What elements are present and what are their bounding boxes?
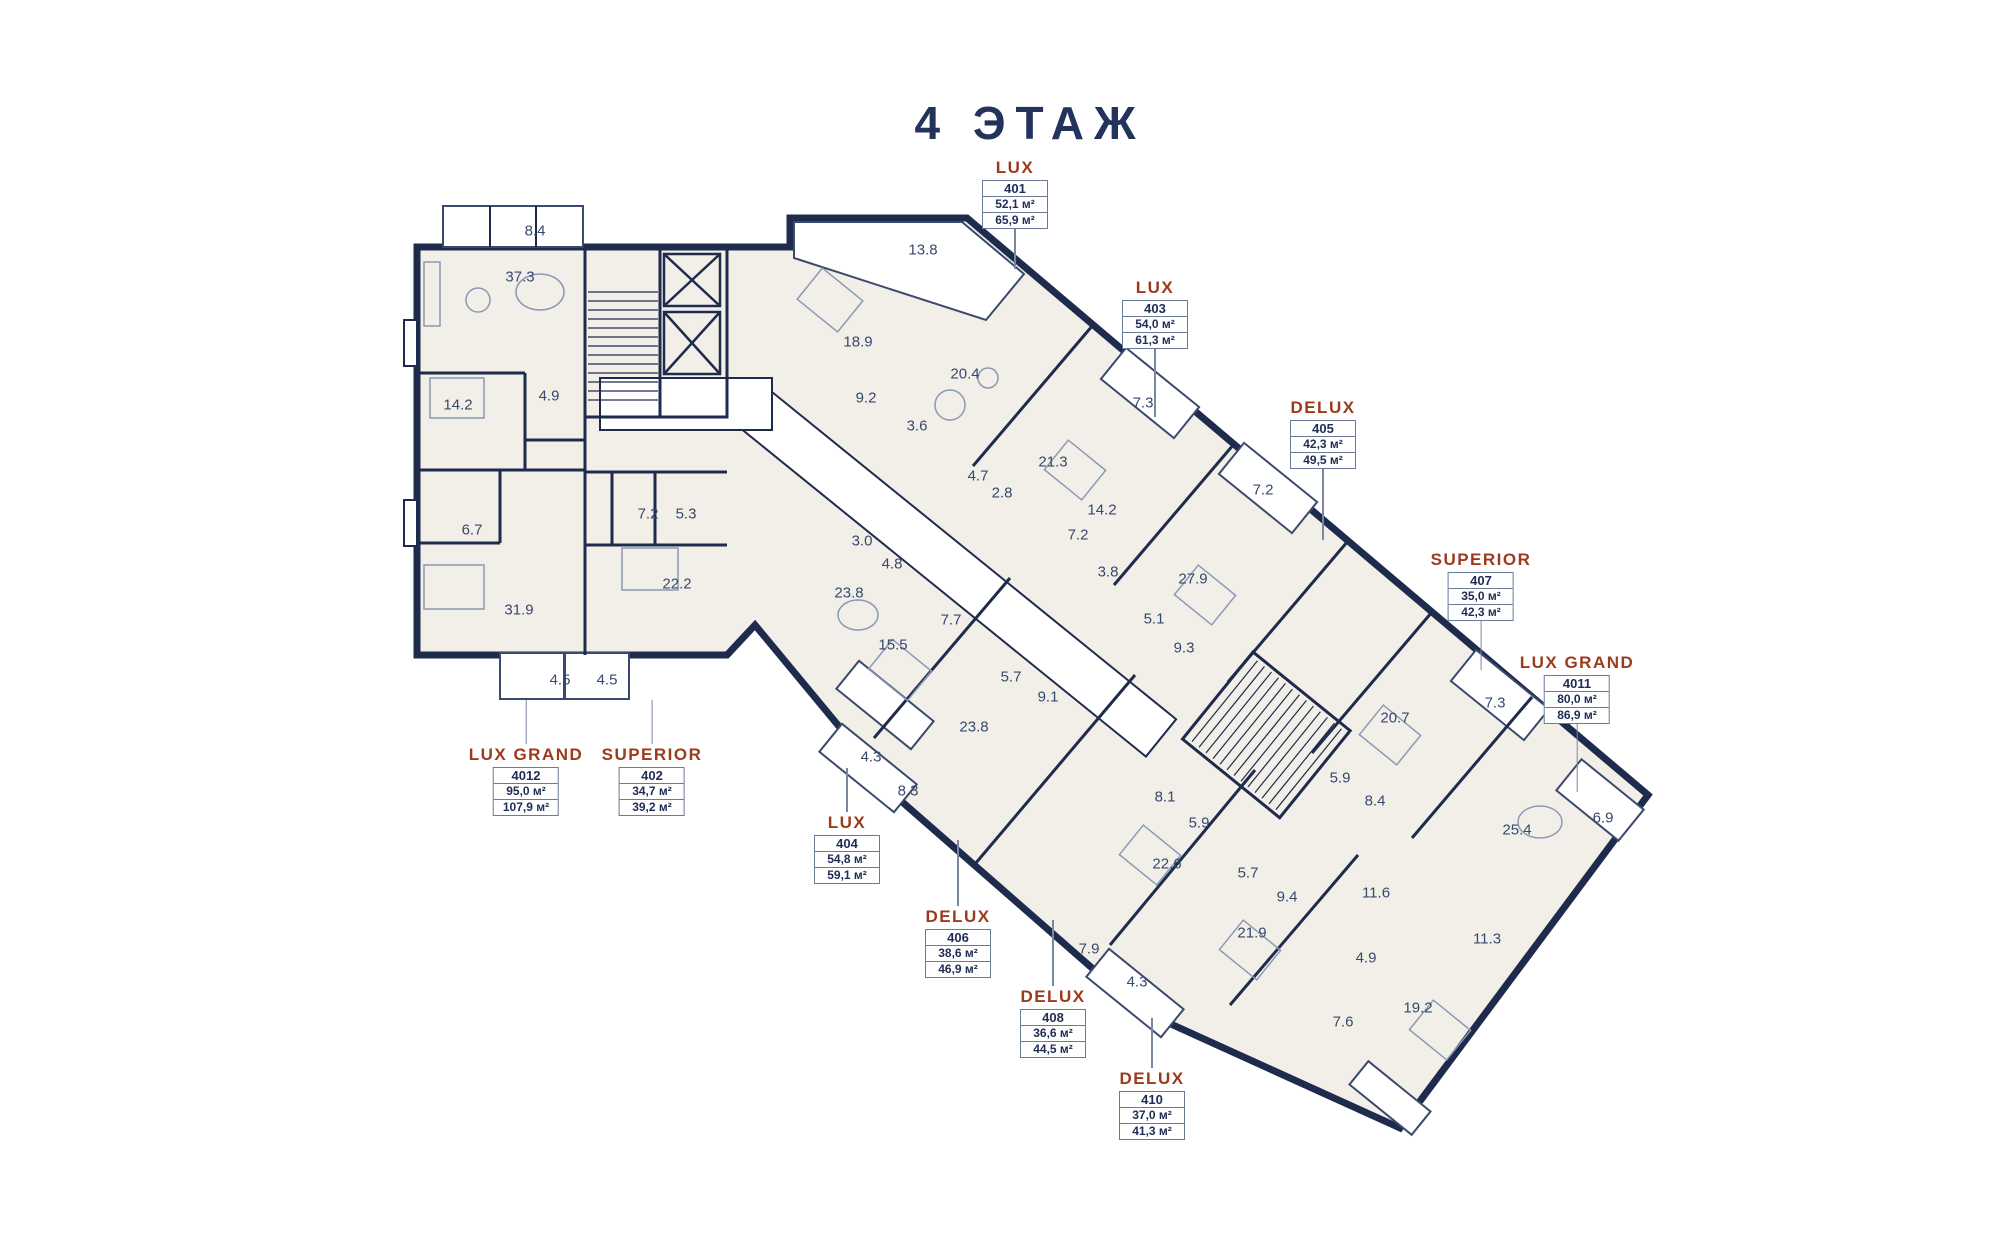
unit-type-label: LUX GRAND <box>1520 653 1635 673</box>
room-area-value: 4.9 <box>539 388 560 405</box>
unit-type-label: DELUX <box>1020 987 1085 1007</box>
room-area-value: 3.0 <box>852 533 873 550</box>
room-area-label: 7.6 <box>1333 1014 1354 1031</box>
room-area-label: 37.3 <box>505 269 534 286</box>
room-area-label: 4.8 <box>882 556 903 573</box>
room-area-label: 3.6 <box>907 418 928 435</box>
unit-number: 405 <box>1291 421 1355 436</box>
room-area-label: 3.0 <box>852 533 873 550</box>
unit-info-box: 403 54,0 м² 61,3 м² <box>1122 300 1188 349</box>
balcony-wing-top <box>443 206 583 247</box>
leader-line <box>1576 724 1578 792</box>
unit-callout-403: LUX 403 54,0 м² 61,3 м² <box>1122 277 1188 417</box>
room-area-value: 14.2 <box>1087 502 1116 519</box>
room-area-value: 9.2 <box>856 390 877 407</box>
room-area-value: 5.7 <box>1238 865 1259 882</box>
room-area-value: 11.3 <box>1473 931 1501 948</box>
room-area-value: 4.5 <box>597 672 618 689</box>
unit-area-living: 35,0 м² <box>1449 588 1513 604</box>
room-area-label: 31.9 <box>504 602 533 619</box>
unit-area-total: 65,9 м² <box>983 212 1047 228</box>
unit-callout-407: SUPERIOR 407 35,0 м² 42,3 м² <box>1431 549 1532 670</box>
room-area-label: 19.2 <box>1403 1000 1432 1017</box>
room-area-label: 5.9 <box>1330 770 1351 787</box>
leader-line <box>1480 621 1482 670</box>
room-area-value: 8.4 <box>525 223 546 240</box>
unit-info-box: 402 34,7 м² 39,2 м² <box>619 767 685 816</box>
room-area-label: 14.2 <box>1087 502 1116 519</box>
leader-line <box>525 700 527 744</box>
room-area-label: 4.5 <box>597 672 618 689</box>
unit-area-total: 59,1 м² <box>815 867 879 883</box>
unit-info-box: 407 35,0 м² 42,3 м² <box>1448 572 1514 621</box>
unit-area-living: 34,7 м² <box>620 783 684 799</box>
room-area-value: 6.9 <box>1593 810 1614 827</box>
unit-area-living: 38,6 м² <box>926 945 990 961</box>
room-area-value: 21.3 <box>1038 454 1067 471</box>
leader-line <box>846 768 848 812</box>
unit-area-total: 46,9 м² <box>926 961 990 977</box>
unit-type-label: SUPERIOR <box>1431 550 1532 570</box>
room-area-label: 23.8 <box>834 585 863 602</box>
room-area-value: 7.2 <box>638 506 659 523</box>
room-area-label: 3.8 <box>1098 564 1119 581</box>
room-area-label: 6.7 <box>462 522 483 539</box>
room-area-value: 5.3 <box>676 506 697 523</box>
room-area-value: 9.1 <box>1038 689 1059 706</box>
floor-plan-page: 4 ЭТАЖ LUX 401 52,1 м² 65,9 м² LUX 403 5… <box>0 0 2000 1252</box>
room-area-value: 19.2 <box>1403 1000 1432 1017</box>
room-area-value: 20.7 <box>1380 710 1409 727</box>
unit-area-living: 37,0 м² <box>1120 1107 1184 1123</box>
room-area-label: 6.9 <box>1593 810 1614 827</box>
room-area-value: 4.3 <box>861 749 882 766</box>
room-area-label: 5.9 <box>1189 815 1210 832</box>
room-area-value: 25.4 <box>1502 822 1531 839</box>
room-area-label: 7.2 <box>1253 482 1274 499</box>
room-area-label: 9.2 <box>856 390 877 407</box>
unit-area-total: 39,2 м² <box>620 799 684 815</box>
unit-area-total: 86,9 м² <box>1545 707 1609 723</box>
room-area-label: 20.4 <box>950 366 979 383</box>
room-area-value: 23.8 <box>959 719 988 736</box>
unit-area-living: 95,0 м² <box>494 783 558 799</box>
unit-number: 4012 <box>494 768 558 783</box>
room-area-label: 13.8 <box>908 242 937 259</box>
unit-number: 401 <box>983 181 1047 196</box>
unit-callout-4011: LUX GRAND 4011 80,0 м² 86,9 м² <box>1520 652 1635 792</box>
room-area-value: 22.2 <box>662 576 691 593</box>
room-area-value: 4.7 <box>968 468 989 485</box>
room-area-label: 4.3 <box>861 749 882 766</box>
unit-info-box: 410 37,0 м² 41,3 м² <box>1119 1091 1185 1140</box>
room-area-label: 20.7 <box>1380 710 1409 727</box>
room-area-value: 3.8 <box>1098 564 1119 581</box>
room-area-label: 8.4 <box>525 223 546 240</box>
room-area-label: 5.1 <box>1144 611 1165 628</box>
leader-line <box>1154 349 1156 417</box>
room-area-label: 7.3 <box>1485 695 1506 712</box>
room-area-label: 5.7 <box>1238 865 1259 882</box>
room-area-label: 23.8 <box>959 719 988 736</box>
unit-info-box: 408 36,6 м² 44,5 м² <box>1020 1009 1086 1058</box>
room-area-value: 7.2 <box>1253 482 1274 499</box>
unit-number: 402 <box>620 768 684 783</box>
unit-type-label: DELUX <box>1119 1069 1184 1089</box>
unit-number: 404 <box>815 836 879 851</box>
room-area-value: 6.7 <box>462 522 483 539</box>
leader-line <box>1052 920 1054 986</box>
room-area-value: 18.9 <box>843 334 872 351</box>
unit-callout-405: DELUX 405 42,3 м² 49,5 м² <box>1290 397 1356 540</box>
unit-type-label: DELUX <box>925 907 990 927</box>
unit-callout-404: LUX 404 54,8 м² 59,1 м² <box>814 768 880 884</box>
room-area-value: 4.5 <box>550 672 571 689</box>
leader-line <box>1014 229 1016 269</box>
room-area-value: 22.6 <box>1152 856 1181 873</box>
room-area-value: 8.1 <box>1155 789 1176 806</box>
room-area-label: 8.3 <box>898 783 919 800</box>
room-area-label: 14.2 <box>443 397 472 414</box>
unit-number: 408 <box>1021 1010 1085 1025</box>
room-area-label: 4.9 <box>539 388 560 405</box>
room-area-value: 15.5 <box>878 637 907 654</box>
room-area-label: 9.3 <box>1174 640 1195 657</box>
room-area-label: 11.6 <box>1362 885 1390 902</box>
room-area-value: 8.4 <box>1365 793 1386 810</box>
room-area-value: 21.9 <box>1237 925 1266 942</box>
room-area-value: 4.3 <box>1127 974 1148 991</box>
room-area-value: 5.9 <box>1189 815 1210 832</box>
room-area-value: 8.3 <box>898 783 919 800</box>
room-area-value: 2.8 <box>992 485 1013 502</box>
unit-type-label: LUX <box>996 158 1035 178</box>
room-area-value: 7.6 <box>1333 1014 1354 1031</box>
room-area-value: 13.8 <box>908 242 937 259</box>
room-area-value: 37.3 <box>505 269 534 286</box>
leader-line <box>1322 469 1324 540</box>
room-area-label: 2.8 <box>992 485 1013 502</box>
leader-line <box>1151 1018 1153 1068</box>
unit-area-living: 52,1 м² <box>983 196 1047 212</box>
unit-callout-410: DELUX 410 37,0 м² 41,3 м² <box>1119 1018 1185 1140</box>
room-area-label: 15.5 <box>878 637 907 654</box>
room-area-value: 9.4 <box>1277 889 1298 906</box>
unit-number: 403 <box>1123 301 1187 316</box>
room-area-label: 22.2 <box>662 576 691 593</box>
unit-callout-4012: LUX GRAND 4012 95,0 м² 107,9 м² <box>469 700 584 816</box>
unit-info-box: 401 52,1 м² 65,9 м² <box>982 180 1048 229</box>
room-area-label: 9.1 <box>1038 689 1059 706</box>
unit-area-living: 42,3 м² <box>1291 436 1355 452</box>
room-area-value: 3.6 <box>907 418 928 435</box>
room-area-label: 5.3 <box>676 506 697 523</box>
room-area-value: 5.7 <box>1001 669 1022 686</box>
unit-callout-408: DELUX 408 36,6 м² 44,5 м² <box>1020 920 1086 1058</box>
room-area-value: 5.9 <box>1330 770 1351 787</box>
page-title: 4 ЭТАЖ <box>914 96 1145 150</box>
unit-area-living: 36,6 м² <box>1021 1025 1085 1041</box>
room-area-value: 4.8 <box>882 556 903 573</box>
room-area-label: 8.1 <box>1155 789 1176 806</box>
room-area-value: 31.9 <box>504 602 533 619</box>
unit-area-living: 54,0 м² <box>1123 316 1187 332</box>
unit-info-box: 4012 95,0 м² 107,9 м² <box>493 767 559 816</box>
unit-callout-401: LUX 401 52,1 м² 65,9 м² <box>982 157 1048 269</box>
unit-area-total: 107,9 м² <box>494 799 558 815</box>
room-area-label: 7.2 <box>638 506 659 523</box>
room-area-value: 14.2 <box>443 397 472 414</box>
unit-callout-406: DELUX 406 38,6 м² 46,9 м² <box>925 840 991 978</box>
unit-callout-402: SUPERIOR 402 34,7 м² 39,2 м² <box>602 700 703 816</box>
room-area-label: 25.4 <box>1502 822 1531 839</box>
room-area-label: 4.9 <box>1356 950 1377 967</box>
room-area-label: 5.7 <box>1001 669 1022 686</box>
room-area-value: 7.3 <box>1485 695 1506 712</box>
room-area-value: 11.6 <box>1362 885 1390 902</box>
room-area-value: 23.8 <box>834 585 863 602</box>
unit-number: 410 <box>1120 1092 1184 1107</box>
room-area-label: 18.9 <box>843 334 872 351</box>
unit-number: 406 <box>926 930 990 945</box>
room-area-value: 5.1 <box>1144 611 1165 628</box>
room-area-label: 7.7 <box>941 612 962 629</box>
unit-type-label: LUX <box>1136 278 1175 298</box>
room-area-label: 8.4 <box>1365 793 1386 810</box>
room-area-value: 20.4 <box>950 366 979 383</box>
room-area-label: 27.9 <box>1178 571 1207 588</box>
room-area-value: 9.3 <box>1174 640 1195 657</box>
lobby <box>600 378 772 430</box>
unit-number: 4011 <box>1545 676 1609 691</box>
room-area-label: 4.3 <box>1127 974 1148 991</box>
room-area-label: 11.3 <box>1473 931 1501 948</box>
unit-type-label: LUX <box>828 813 867 833</box>
unit-type-label: LUX GRAND <box>469 745 584 765</box>
room-area-label: 4.5 <box>550 672 571 689</box>
room-area-label: 21.9 <box>1237 925 1266 942</box>
unit-info-box: 4011 80,0 м² 86,9 м² <box>1544 675 1610 724</box>
leader-line <box>957 840 959 906</box>
unit-area-total: 49,5 м² <box>1291 452 1355 468</box>
unit-area-total: 42,3 м² <box>1449 604 1513 620</box>
room-area-value: 4.9 <box>1356 950 1377 967</box>
room-area-value: 27.9 <box>1178 571 1207 588</box>
unit-info-box: 406 38,6 м² 46,9 м² <box>925 929 991 978</box>
leader-line <box>651 700 653 744</box>
unit-info-box: 405 42,3 м² 49,5 м² <box>1290 420 1356 469</box>
unit-area-total: 41,3 м² <box>1120 1123 1184 1139</box>
room-area-label: 9.4 <box>1277 889 1298 906</box>
unit-area-living: 80,0 м² <box>1545 691 1609 707</box>
unit-number: 407 <box>1449 573 1513 588</box>
room-area-value: 7.2 <box>1068 527 1089 544</box>
unit-type-label: DELUX <box>1290 398 1355 418</box>
unit-area-living: 54,8 м² <box>815 851 879 867</box>
unit-type-label: SUPERIOR <box>602 745 703 765</box>
room-area-label: 7.2 <box>1068 527 1089 544</box>
unit-area-total: 61,3 м² <box>1123 332 1187 348</box>
room-area-label: 22.6 <box>1152 856 1181 873</box>
room-area-label: 21.3 <box>1038 454 1067 471</box>
unit-area-total: 44,5 м² <box>1021 1041 1085 1057</box>
room-area-label: 4.7 <box>968 468 989 485</box>
unit-info-box: 404 54,8 м² 59,1 м² <box>814 835 880 884</box>
room-area-value: 7.7 <box>941 612 962 629</box>
